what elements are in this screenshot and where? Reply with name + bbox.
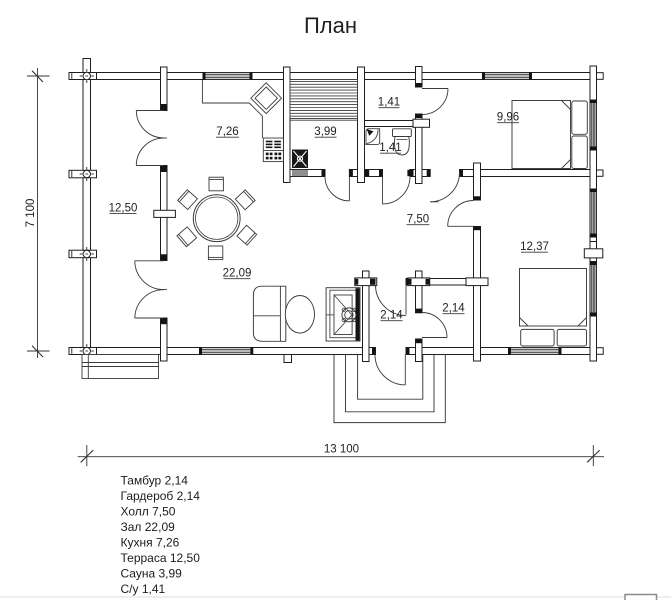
svg-text:С/у 1,41: С/у 1,41 <box>121 582 166 596</box>
svg-text:3,99: 3,99 <box>314 126 336 138</box>
svg-text:7,26: 7,26 <box>216 126 238 138</box>
svg-text:Тамбур 2,14: Тамбур 2,14 <box>121 474 189 488</box>
svg-text:22,09: 22,09 <box>223 268 252 280</box>
svg-text:Гардероб 2,14: Гардероб 2,14 <box>121 489 201 503</box>
svg-text:12,50: 12,50 <box>109 202 138 214</box>
svg-text:7,50: 7,50 <box>407 214 429 226</box>
svg-text:2,14: 2,14 <box>380 310 403 322</box>
svg-text:Кухня 7,26: Кухня 7,26 <box>121 536 180 550</box>
svg-text:Холл 7,50: Холл 7,50 <box>121 505 176 519</box>
svg-text:Терраса 12,50: Терраса 12,50 <box>121 551 201 565</box>
svg-text:7 100: 7 100 <box>25 199 37 228</box>
svg-text:План: План <box>304 13 357 38</box>
svg-text:12,37: 12,37 <box>520 241 549 253</box>
svg-text:Зал 22,09: Зал 22,09 <box>121 520 176 534</box>
svg-text:13 100: 13 100 <box>324 443 359 455</box>
svg-text:Сауна 3,99: Сауна 3,99 <box>121 567 183 581</box>
svg-text:2,14: 2,14 <box>442 303 465 315</box>
svg-text:1,41: 1,41 <box>379 142 401 154</box>
svg-text:9,96: 9,96 <box>497 112 519 124</box>
svg-text:1,41: 1,41 <box>378 97 400 109</box>
